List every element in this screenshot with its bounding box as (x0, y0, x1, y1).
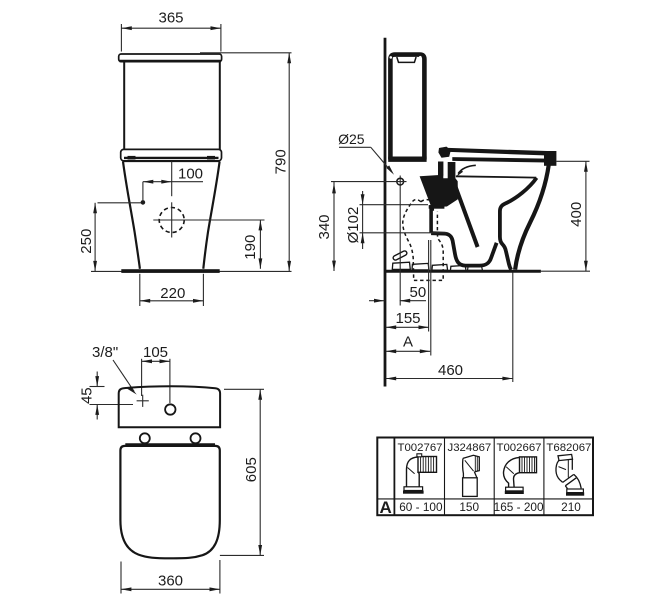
svg-text:365: 365 (158, 10, 183, 27)
svg-text:45: 45 (79, 387, 96, 404)
svg-text:100: 100 (178, 166, 203, 183)
svg-text:3/8": 3/8" (92, 344, 118, 361)
svg-text:Ø102: Ø102 (345, 207, 362, 244)
svg-text:A: A (403, 333, 413, 350)
svg-text:210: 210 (561, 500, 581, 514)
svg-text:Ø25: Ø25 (338, 131, 365, 147)
svg-text:60 - 100: 60 - 100 (399, 500, 443, 514)
svg-text:155: 155 (395, 310, 420, 327)
svg-text:190: 190 (242, 235, 259, 260)
svg-text:220: 220 (160, 285, 185, 302)
svg-text:T002767: T002767 (398, 442, 443, 454)
svg-text:250: 250 (78, 229, 95, 254)
svg-text:150: 150 (459, 500, 479, 514)
svg-text:T002667: T002667 (497, 442, 542, 454)
svg-text:460: 460 (438, 362, 463, 379)
svg-text:A: A (380, 498, 392, 517)
svg-text:J324867: J324867 (448, 442, 492, 454)
svg-text:605: 605 (243, 457, 260, 482)
svg-text:50: 50 (410, 284, 427, 301)
svg-text:105: 105 (143, 344, 168, 361)
svg-text:165 - 200: 165 - 200 (494, 500, 544, 514)
svg-text:360: 360 (158, 573, 183, 590)
svg-text:340: 340 (316, 214, 333, 239)
svg-text:400: 400 (568, 202, 585, 227)
svg-text:790: 790 (272, 149, 289, 174)
svg-text:T682067: T682067 (546, 442, 591, 454)
